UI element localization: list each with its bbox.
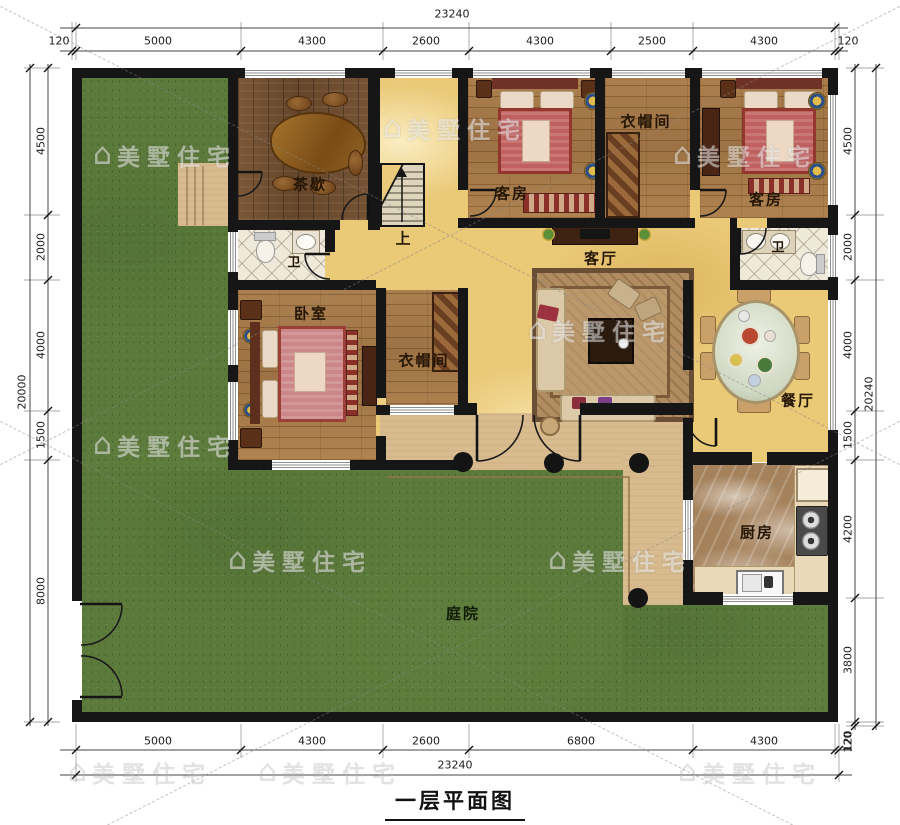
- dim-label: 2000: [35, 233, 48, 261]
- quilt-panel: [766, 120, 794, 162]
- window: [702, 68, 822, 78]
- room-label-guest-right: 客房: [749, 189, 783, 210]
- room-label-kitchen: 厨房: [740, 522, 774, 543]
- wall-outer-bottom: [72, 712, 838, 722]
- wall: [458, 68, 468, 190]
- toilet-tank: [816, 254, 825, 274]
- dim-left-total: 20000: [16, 375, 29, 410]
- room-label-bedroom: 卧室: [294, 303, 328, 324]
- dim-label: 120: [838, 35, 859, 48]
- toilet: [256, 240, 275, 263]
- tea-stool: [322, 92, 348, 107]
- pillow: [744, 91, 778, 109]
- pillow: [540, 91, 574, 109]
- wall: [350, 460, 468, 470]
- wall: [376, 288, 386, 398]
- wall: [376, 436, 386, 470]
- wall: [458, 288, 468, 415]
- tea-stool: [348, 150, 363, 176]
- dim-label: 4300: [298, 735, 326, 748]
- wall-medallion: [808, 92, 826, 110]
- stove-burner: [802, 532, 820, 550]
- dim-label: 2500: [638, 35, 666, 48]
- dim-label: 5000: [144, 735, 172, 748]
- dim-label: 4300: [298, 35, 326, 48]
- plant-pot: [638, 228, 651, 241]
- watermark-logo: ⌂美墅住宅: [258, 755, 402, 789]
- window: [828, 95, 838, 205]
- wall: [683, 592, 723, 605]
- stairs-up-label: 上: [395, 228, 412, 249]
- wall: [458, 403, 477, 415]
- room-label-bath-right: 卫: [771, 237, 784, 256]
- window: [390, 405, 454, 415]
- window: [828, 300, 838, 430]
- window: [228, 310, 238, 365]
- wall: [580, 403, 693, 415]
- window: [723, 594, 793, 604]
- nightstand: [720, 80, 736, 98]
- gate-opening: [72, 601, 82, 700]
- bedroom-dresser: [362, 346, 377, 406]
- room-label-bath-left: 卫: [287, 252, 300, 271]
- dining-dish: [738, 310, 750, 322]
- dim-label: 4000: [842, 331, 855, 359]
- bed-foot-bench: [346, 330, 358, 416]
- dining-dish: [740, 326, 760, 346]
- dim-label: 2600: [412, 735, 440, 748]
- cloak-top-closet: [606, 132, 640, 218]
- house-logo-icon: ⌂: [678, 757, 697, 787]
- sink-basin: [742, 574, 762, 592]
- room-label-tea: 茶歇: [293, 174, 327, 195]
- dim-label: 4000: [35, 331, 48, 359]
- dining-dish: [728, 352, 744, 368]
- wall-medallion: [808, 162, 826, 180]
- dining-dish: [748, 374, 761, 387]
- wall: [595, 68, 605, 218]
- wall: [228, 220, 340, 230]
- window: [272, 460, 350, 470]
- bedroom-bed-headboard: [250, 322, 260, 424]
- wall: [228, 280, 376, 290]
- wall: [683, 465, 693, 500]
- wall: [458, 218, 605, 228]
- room-label-courtyard: 庭院: [446, 603, 480, 624]
- wall: [730, 228, 740, 280]
- nightstand: [476, 80, 492, 98]
- quilt-panel: [294, 352, 326, 392]
- wall: [228, 460, 272, 470]
- plant-pot: [542, 228, 555, 241]
- dim-label: 5000: [144, 35, 172, 48]
- dim-label: 3800: [842, 646, 855, 674]
- house-logo-icon: ⌂: [68, 757, 87, 787]
- pillow: [262, 380, 278, 418]
- window: [612, 68, 685, 78]
- dim-label: 4500: [35, 127, 48, 155]
- window: [245, 68, 345, 78]
- wall: [730, 280, 838, 290]
- window: [683, 500, 693, 560]
- window: [395, 68, 452, 78]
- dim-label: 8000: [35, 577, 48, 605]
- room-label-dining: 餐厅: [781, 390, 815, 411]
- dim-label: 4300: [750, 35, 778, 48]
- dim-label: 1500: [35, 421, 48, 449]
- wall: [325, 222, 335, 252]
- fridge: [796, 468, 830, 502]
- wall: [683, 280, 693, 370]
- dim-label: 4500: [842, 127, 855, 155]
- wall: [793, 592, 838, 605]
- window: [828, 235, 838, 277]
- stove-burner: [802, 511, 820, 529]
- room-label-cloak-top: 衣帽间: [620, 111, 671, 132]
- guest-left-bed-headboard: [492, 77, 578, 89]
- house-logo-icon: ⌂: [258, 757, 277, 787]
- faucet: [764, 576, 773, 588]
- sink-basin: [746, 233, 766, 250]
- hall-cabinet: [702, 108, 720, 176]
- wall: [690, 68, 700, 190]
- tea-stool: [286, 96, 312, 111]
- window: [228, 232, 238, 272]
- lawn-bottom-right: [623, 605, 829, 713]
- wall: [767, 452, 838, 465]
- drawing-title: 一层平面图: [385, 785, 525, 821]
- tv: [580, 229, 610, 239]
- dim-label: 4300: [526, 35, 554, 48]
- dim-top-total: 23240: [435, 8, 470, 21]
- dining-dish: [756, 356, 774, 374]
- floor-plan-canvas: 23240 120 5000 4300 2600 4300 2500 4300 …: [0, 0, 900, 825]
- wall: [605, 218, 695, 228]
- pillow: [262, 330, 278, 368]
- dim-label: 6800: [567, 735, 595, 748]
- wall: [767, 218, 838, 228]
- courtyard-lawn: [81, 470, 623, 713]
- dim-bottom-total: 23240: [438, 759, 473, 772]
- watermark-logo: ⌂美墅住宅: [678, 755, 822, 789]
- window: [473, 68, 590, 78]
- wall: [683, 452, 752, 465]
- guest-right-bed-headboard: [736, 77, 822, 89]
- luggage-bench: [523, 193, 597, 213]
- dining-table: [712, 300, 800, 404]
- pouf: [540, 416, 560, 436]
- window: [228, 382, 238, 440]
- dim-label: 4300: [750, 735, 778, 748]
- pillow: [500, 91, 534, 109]
- room-label-cloak-mid: 衣帽间: [398, 350, 449, 371]
- dim-label: 1500: [842, 421, 855, 449]
- room-label-guest-left: 客房: [495, 183, 529, 204]
- dim-label: 2000: [842, 233, 855, 261]
- nightstand: [240, 300, 262, 320]
- dim-label: 2600: [412, 35, 440, 48]
- decor-ball: [618, 338, 629, 349]
- watermark-logo: ⌂美墅住宅: [68, 755, 212, 789]
- dim-label: 120: [49, 35, 70, 48]
- dining-dish: [764, 330, 776, 342]
- sink-basin: [296, 234, 316, 250]
- wall: [368, 68, 380, 230]
- quilt-panel: [522, 120, 550, 162]
- dim-right-total: 20240: [863, 377, 876, 412]
- dim-label: 4200: [842, 515, 855, 543]
- room-label-living: 客厅: [584, 248, 618, 269]
- nightstand: [240, 428, 262, 448]
- wall: [730, 218, 737, 228]
- dim-label: 120: [842, 732, 855, 753]
